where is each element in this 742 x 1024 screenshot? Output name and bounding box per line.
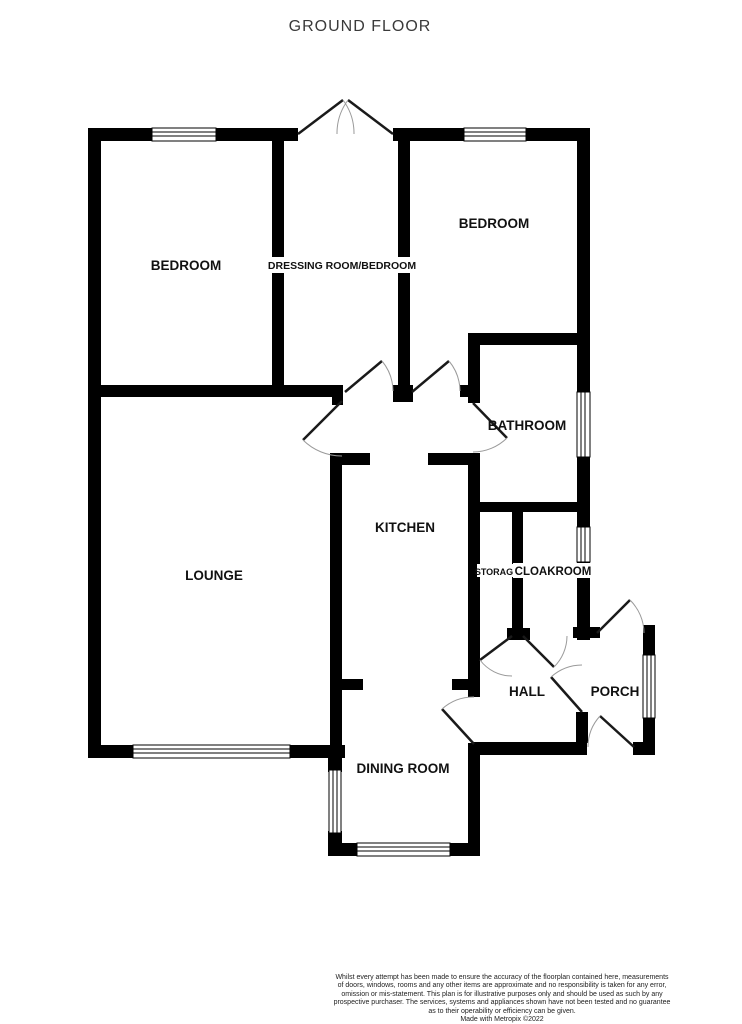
wall-segment xyxy=(468,743,480,856)
disclaimer-line: of doors, windows, rooms and any other i… xyxy=(262,982,742,990)
hall-porch-door xyxy=(551,665,582,712)
porch-label: PORCH xyxy=(591,684,640,699)
french-doors xyxy=(298,100,393,134)
kitchen-label: KITCHEN xyxy=(375,520,435,535)
wall-segment xyxy=(88,745,133,758)
lounge-label: LOUNGE xyxy=(185,568,243,583)
bedroom2-door xyxy=(412,361,460,392)
bathroom-label: BATHROOM xyxy=(488,418,567,433)
wall-segment xyxy=(393,128,464,141)
disclaimer-line: omission or mis-statement. This plan is … xyxy=(262,991,742,999)
wall-segment xyxy=(330,453,342,763)
wall-segment xyxy=(88,385,343,397)
wall-segment xyxy=(393,385,413,402)
cloakroom-window xyxy=(577,527,590,562)
disclaimer-line: as to their operability or efficiency ca… xyxy=(262,1008,742,1016)
wall-segment xyxy=(577,457,590,527)
dining-bottom-window xyxy=(357,843,450,856)
disclaimer-line: Whilst every attempt has been made to en… xyxy=(262,974,742,982)
disclaimer-line: prospective purchaser. The services, sys… xyxy=(262,999,742,1007)
wall-segment xyxy=(468,333,480,403)
cloakroom-label: CLOAKROOM xyxy=(515,566,592,578)
wall-segment xyxy=(643,718,655,745)
dining-side-window xyxy=(329,770,341,833)
wall-segment xyxy=(328,843,357,856)
wall-segment xyxy=(340,679,363,690)
bedroom1-window xyxy=(152,128,216,141)
wall-segment xyxy=(468,502,588,512)
bedroom2-label: BEDROOM xyxy=(459,216,530,231)
wall-segment xyxy=(452,679,480,690)
lounge-door xyxy=(303,401,342,456)
bathroom-window xyxy=(577,392,590,457)
lounge-window xyxy=(133,745,290,758)
bedroom1-label: BEDROOM xyxy=(151,258,222,273)
porch-window xyxy=(643,655,655,718)
dining-room-door xyxy=(442,697,474,744)
wall-segment xyxy=(468,512,480,697)
disclaimer: Whilst every attempt has been made to en… xyxy=(262,974,742,1024)
bedroom2-window xyxy=(464,128,526,141)
floorplan-drawing: BEDROOM DRESSING ROOM/BEDROOM BEDROOM BA… xyxy=(0,0,742,1024)
wall-segment xyxy=(88,128,101,758)
porch-front-door xyxy=(588,716,634,747)
wall-segment xyxy=(468,333,590,345)
wall-segment xyxy=(576,712,588,743)
storage-label: STORAGE xyxy=(475,567,519,577)
wall-segment xyxy=(216,128,298,141)
made-with-credit: Made with Metropix ©2022 xyxy=(262,1016,742,1024)
wall-segment xyxy=(577,128,590,392)
wall-segment xyxy=(643,625,655,655)
wall-segment xyxy=(468,690,480,697)
cloakroom-door xyxy=(523,636,567,667)
wall-segment xyxy=(450,843,480,856)
wall-segment xyxy=(472,742,587,755)
floorplan-page: GROUND FLOOR xyxy=(0,0,742,1024)
wall-segment xyxy=(428,453,480,465)
dressing-room-label: DRESSING ROOM/BEDROOM xyxy=(268,260,416,272)
dressing-room-door xyxy=(345,361,393,392)
hall-label: HALL xyxy=(509,684,545,699)
porch-entrance-door xyxy=(597,600,644,633)
wall-segment xyxy=(290,745,345,758)
dining-room-label: DINING ROOM xyxy=(357,761,450,776)
wall-segment xyxy=(573,627,600,638)
room-labels: BEDROOM DRESSING ROOM/BEDROOM BEDROOM BA… xyxy=(151,216,640,776)
storage-door xyxy=(480,636,512,676)
